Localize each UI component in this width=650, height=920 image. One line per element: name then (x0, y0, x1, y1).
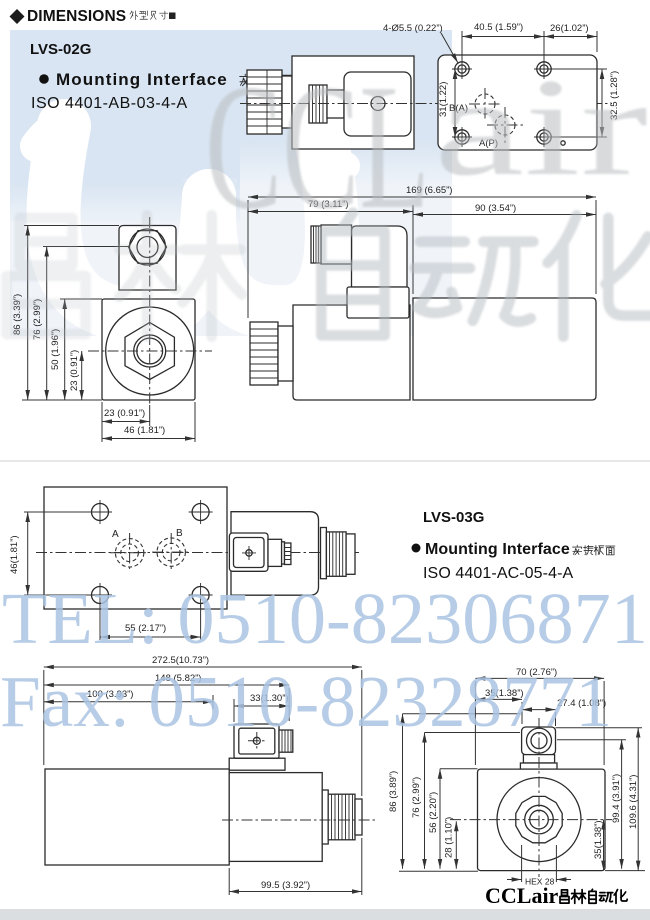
svg-text:99.4 (3.91”): 99.4 (3.91”) (611, 774, 622, 823)
svg-text:ISO 4401-AB-03-4-A: ISO 4401-AB-03-4-A (31, 95, 188, 112)
svg-text:LVS-03G: LVS-03G (423, 509, 484, 526)
svg-text:46(1.81”): 46(1.81”) (9, 535, 20, 574)
svg-text:56 (2.20”): 56 (2.20”) (428, 792, 439, 833)
svg-text:26(1.02”): 26(1.02”) (550, 23, 589, 34)
svg-text:DIMENSIONS: DIMENSIONS (27, 8, 126, 25)
svg-text:109.6 (4.31”): 109.6 (4.31”) (628, 775, 639, 829)
svg-text:air: air (434, 50, 648, 205)
svg-text:Mounting Interface: Mounting Interface (56, 70, 228, 89)
svg-text:23 (0.91”): 23 (0.91”) (104, 408, 145, 419)
svg-text:28 (1.10”): 28 (1.10”) (444, 817, 455, 858)
svg-text:TEL: 0510-82306871: TEL: 0510-82306871 (2, 578, 648, 659)
svg-text:CCL: CCL (205, 47, 430, 246)
svg-text:Mounting Interface: Mounting Interface (425, 541, 570, 558)
svg-text:35(1.38”): 35(1.38”) (593, 820, 604, 859)
svg-text:B: B (176, 528, 183, 539)
svg-text:46 (1.81”): 46 (1.81”) (124, 425, 165, 436)
svg-text:76 (2.99”): 76 (2.99”) (411, 777, 422, 818)
svg-text:23 (0.91”): 23 (0.91”) (69, 350, 80, 391)
svg-text:LVS-02G: LVS-02G (30, 41, 91, 58)
svg-text:CCLair: CCLair (485, 883, 559, 908)
svg-text:40.5 (1.59”): 40.5 (1.59”) (474, 22, 523, 33)
svg-text:86 (3.89”): 86 (3.89”) (388, 771, 399, 812)
svg-text:4-Ø5.5 (0.22”): 4-Ø5.5 (0.22”) (383, 23, 443, 34)
svg-text:99.5 (3.92”): 99.5 (3.92”) (261, 880, 310, 891)
svg-text:Fax: 0510-82328771: Fax: 0510-82328771 (0, 661, 612, 742)
svg-text:A: A (112, 529, 119, 540)
